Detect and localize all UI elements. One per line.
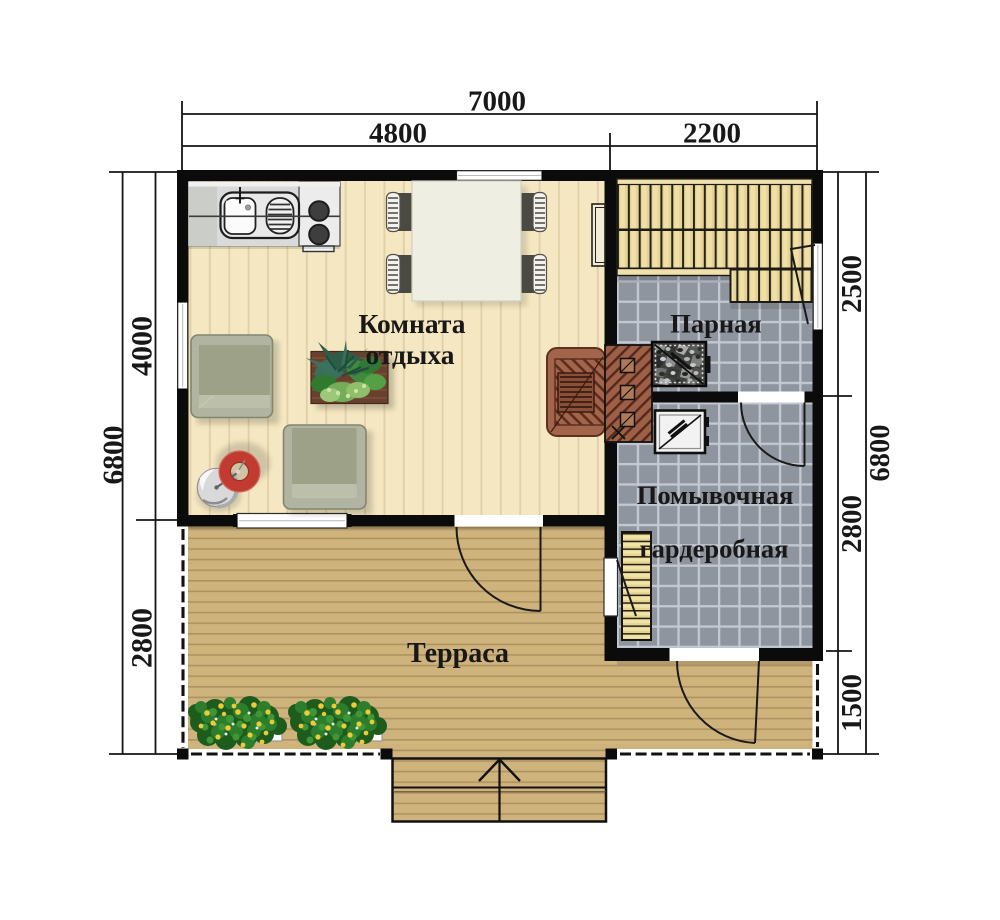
svg-text:4000: 4000	[126, 316, 159, 376]
svg-text:2200: 2200	[683, 118, 741, 150]
svg-text:2800: 2800	[126, 608, 159, 668]
svg-text:гардеробная: гардеробная	[640, 534, 789, 564]
svg-text:1500: 1500	[836, 674, 868, 732]
svg-text:Терраса: Терраса	[407, 638, 509, 669]
svg-text:Комната: Комната	[358, 308, 465, 339]
svg-text:Парная: Парная	[670, 309, 761, 339]
svg-text:Помывочная: Помывочная	[637, 480, 794, 510]
svg-text:отдыха: отдыха	[365, 339, 454, 370]
svg-text:2800: 2800	[836, 495, 868, 553]
svg-text:7000: 7000	[468, 86, 526, 118]
svg-text:4800: 4800	[369, 118, 427, 150]
svg-text:6800: 6800	[98, 426, 130, 485]
svg-text:2500: 2500	[836, 255, 868, 313]
svg-text:6800: 6800	[865, 425, 896, 482]
